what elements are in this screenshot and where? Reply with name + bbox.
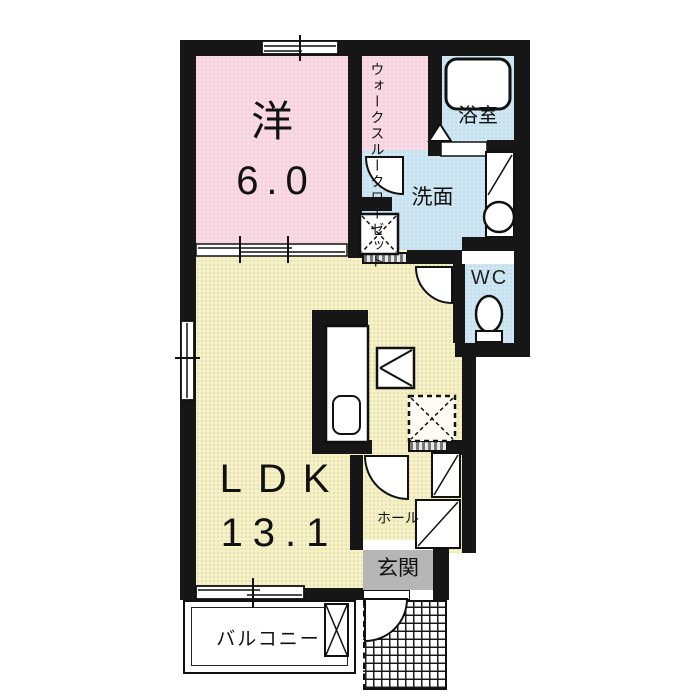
entrance-step [363, 540, 433, 550]
label-hall: ホール [363, 511, 433, 526]
room-western-floor [196, 56, 348, 243]
entrance-door-threshold [363, 590, 410, 600]
wall [348, 56, 362, 258]
label-wc: WC [465, 268, 514, 289]
entrance-porch-tiles [363, 600, 447, 690]
label-ldk-area: 13.1 [192, 512, 357, 554]
floor-plan: 洋 6.0 ウォークスルークローゼット 浴室 洗面 WC LDK 13.1 ホー… [0, 0, 700, 700]
label-western-room: 洋 [196, 100, 348, 144]
label-balcony: バルコニー [196, 630, 341, 650]
label-walkthrough-closet: ウォークスルークローゼット [366, 62, 388, 202]
wall [448, 440, 462, 455]
wall [462, 357, 476, 553]
wall [462, 237, 514, 251]
wall [455, 343, 514, 357]
wall [487, 140, 514, 156]
wall [514, 56, 530, 357]
label-washroom: 洗面 [395, 187, 470, 209]
label-western-area: 6.0 [196, 160, 348, 202]
closet-label-line1: ウォークスルー [369, 62, 385, 174]
wall [180, 40, 530, 56]
wall [453, 264, 465, 343]
sliding-door-storage [408, 440, 448, 452]
label-bath: 浴室 [442, 106, 514, 127]
wall-kitchen [312, 310, 326, 454]
wall [428, 56, 442, 156]
wall-kitchen [312, 440, 372, 454]
wall [180, 588, 363, 600]
label-entrance: 玄関 [363, 558, 433, 580]
outside-patch [449, 553, 476, 600]
wall [433, 548, 449, 600]
room-bath-floor [442, 56, 514, 142]
label-ldk: LDK [192, 458, 357, 500]
closet-label-line2: クローゼット [369, 174, 385, 270]
wall [407, 250, 462, 264]
